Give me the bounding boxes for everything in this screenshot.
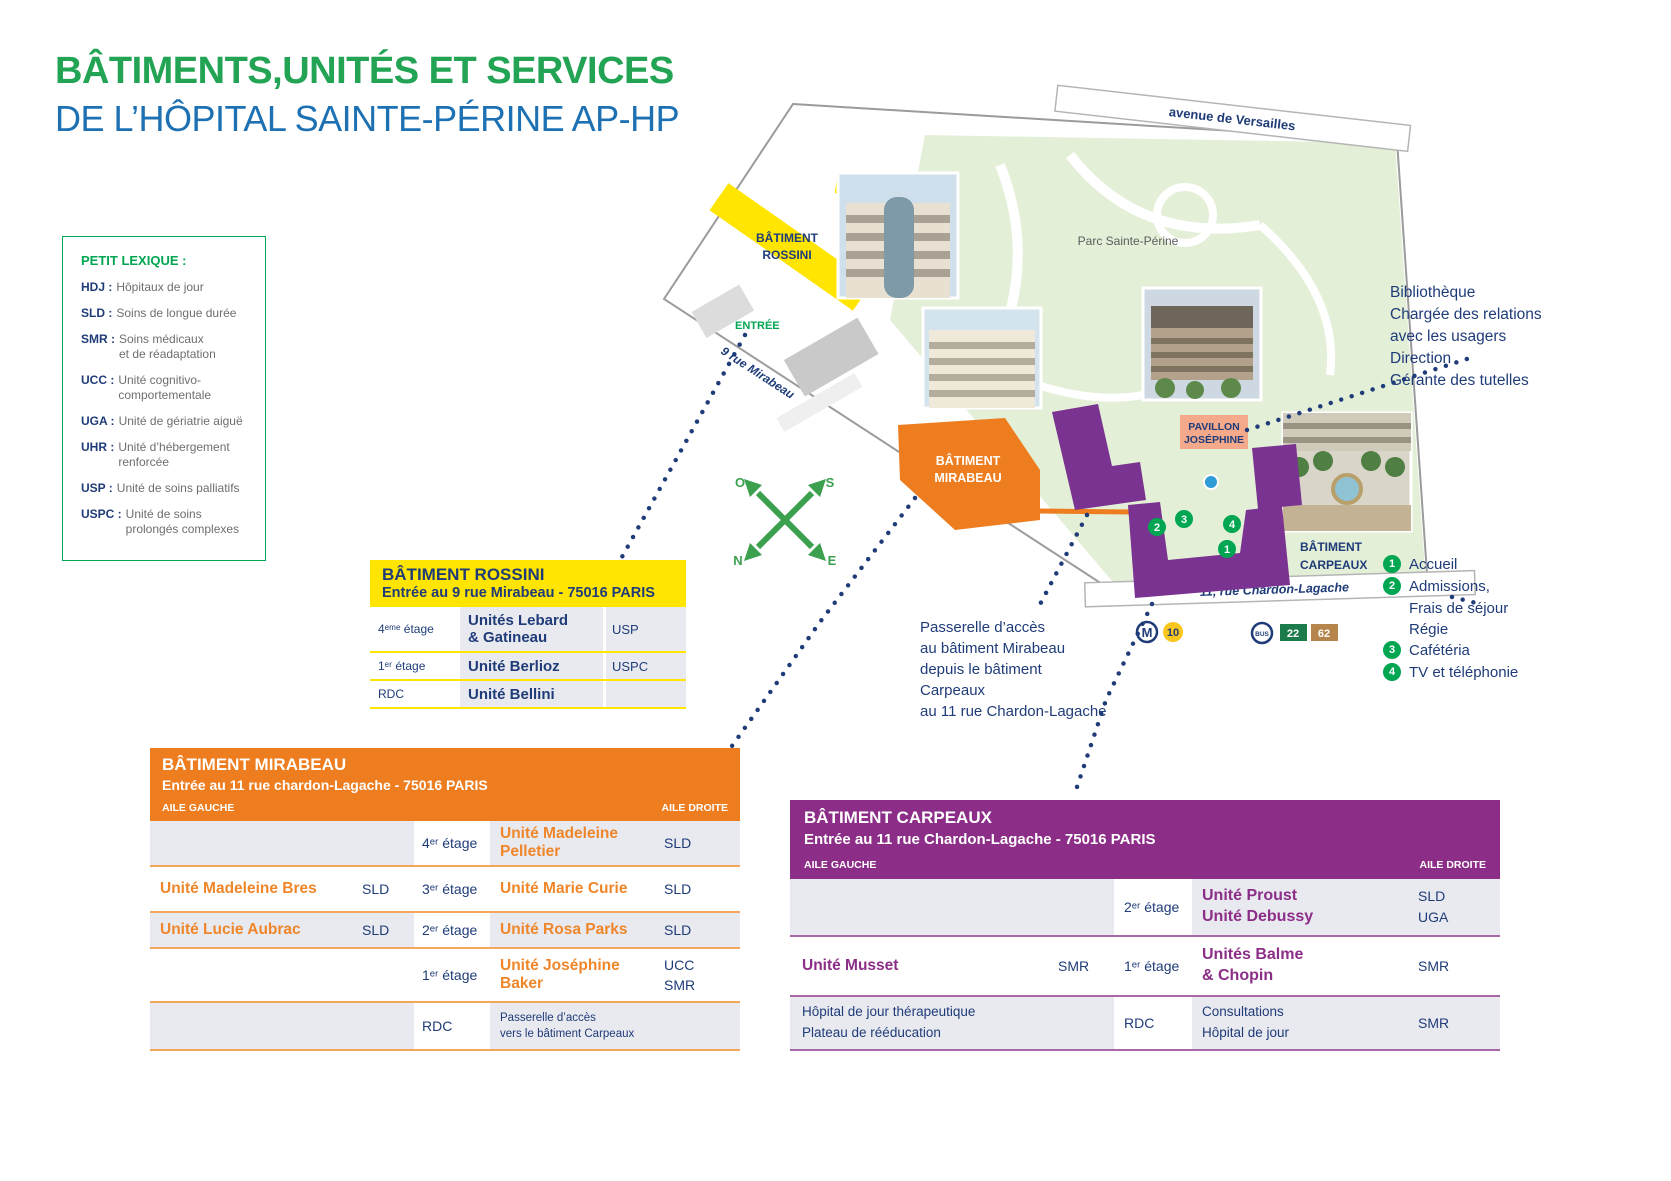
lexicon-abbr: USP : <box>81 481 113 496</box>
josephine-map-label: JOSÉPHINE <box>1184 433 1244 446</box>
mirabeau-map-label: MIRABEAU <box>934 471 1001 485</box>
wing-left-label: AILE GAUCHE <box>804 859 876 871</box>
legend-label: TV et téléphonie <box>1409 662 1518 683</box>
floor-cell: 1ᵉʳ étage <box>370 653 460 679</box>
table-row: 4ᵉᵐᵉ étage Unités Lebard & Gatineau USP <box>370 607 686 653</box>
note-line: Bibliothèque <box>1390 282 1542 304</box>
wing-labels: AILE GAUCHE AILE DROITE <box>804 848 1486 879</box>
mirabeau-map-label: BÂTIMENT <box>936 453 1001 468</box>
right-code-cell: SLD UGA <box>1414 879 1500 935</box>
right-code-cell: SLD <box>660 867 740 911</box>
table-row: RDC Unité Bellini <box>370 681 686 709</box>
entrance-label: ENTRÉE <box>735 319 780 332</box>
table-row: Unité Lucie Aubrac SLD 2ᵉʳ étage Unité R… <box>150 913 740 949</box>
left-code-cell <box>1052 997 1114 1049</box>
rossini-map-label: BÂTIMENT <box>756 230 819 245</box>
legend-number-badge: 3 <box>1383 641 1401 659</box>
note-line: Carpeaux <box>920 680 1107 701</box>
right-code-cell: SLD <box>660 821 740 865</box>
lexicon-def: Unité cognitivo- comportementale <box>118 373 211 403</box>
marker-1: 1 <box>1224 544 1230 556</box>
carpeaux-map-label: CARPEAUX <box>1300 558 1367 572</box>
legend-label: Admissions, <box>1409 576 1490 597</box>
lexicon-entry: USPC :Unité de soins prolongés complexes <box>81 507 253 537</box>
lexicon-def: Unité d’hébergement renforcée <box>118 440 229 470</box>
compass-north: N <box>733 553 742 568</box>
legend-label: Accueil <box>1409 554 1457 575</box>
metro-line-10: 10 <box>1167 627 1179 639</box>
right-unit-cell: Unité Rosa Parks <box>490 913 660 947</box>
floor-cell: 4ᵉʳ étage <box>414 821 490 865</box>
services-note: Bibliothèque Chargée des relations avec … <box>1390 282 1542 392</box>
poster: BÂTIMENTS,UNITÉS ET SERVICES DE L’HÔPITA… <box>0 0 1671 1181</box>
right-code-cell: SMR <box>1414 997 1500 1049</box>
floor-cell: RDC <box>414 1003 490 1049</box>
lexicon-entry: UGA :Unité de gériatrie aiguë <box>81 414 253 429</box>
page-title: BÂTIMENTS,UNITÉS ET SERVICES <box>55 50 674 93</box>
rossini-map-label: ROSSINI <box>762 248 811 262</box>
legend-item: 3 Cafétéria <box>1383 640 1518 661</box>
legend-item: 2 Admissions, <box>1383 576 1518 597</box>
left-code-cell <box>1052 879 1114 935</box>
compass-icon: O S N E <box>733 475 836 568</box>
park-label: Parc Sainte-Périne <box>1078 234 1179 248</box>
lexicon-entry: SMR :Soins médicaux et de réadaptation <box>81 332 253 362</box>
photo-rossini <box>838 173 958 298</box>
table-address: Entrée au 11 rue chardon-Lagache - 75016… <box>162 777 728 793</box>
page-subtitle: DE L’HÔPITAL SAINTE-PÉRINE AP-HP <box>55 98 679 140</box>
right-unit-cell: Unités Balme & Chopin <box>1192 937 1414 995</box>
lexicon-def: Unité de gériatrie aiguë <box>119 414 243 429</box>
transit-icons: M 10 BUS 22 62 <box>1137 622 1338 643</box>
code-cell: USPC <box>606 653 686 679</box>
floor-cell: 2ᵉʳ étage <box>414 913 490 947</box>
compass-east: E <box>828 553 837 568</box>
compass-west: O <box>735 475 745 490</box>
code-cell: USP <box>606 607 686 651</box>
metro-m: M <box>1142 625 1153 640</box>
lexicon-def: Hôpitaux de jour <box>116 280 203 295</box>
note-line: au 11 rue Chardon-Lagache <box>920 701 1107 722</box>
mirabeau-table: BÂTIMENT MIRABEAU Entrée au 11 rue chard… <box>150 748 740 1051</box>
note-line: depuis le bâtiment <box>920 659 1107 680</box>
right-code-cell: UCC SMR <box>660 949 740 1001</box>
table-row: 2ᵉʳ étage Unité Proust Unité Debussy SLD… <box>790 879 1500 937</box>
right-unit-cell: Unité Joséphine Baker <box>490 949 660 1001</box>
unit-cell: Unités Lebard & Gatineau <box>460 607 606 651</box>
table-title: BÂTIMENT CARPEAUX <box>804 808 1486 828</box>
legend-item: 4 TV et téléphonie <box>1383 662 1518 683</box>
unit-cell: Unité Bellini <box>460 681 606 707</box>
left-code-cell <box>356 1003 414 1049</box>
carpeaux-table-header: BÂTIMENT CARPEAUX Entrée au 11 rue Chard… <box>790 800 1500 879</box>
floor-cell: RDC <box>1114 997 1192 1049</box>
left-unit-cell: Unité Lucie Aubrac <box>150 913 356 947</box>
right-unit-cell: Consultations Hôpital de jour <box>1192 997 1414 1049</box>
wing-left-label: AILE GAUCHE <box>162 802 234 814</box>
lexicon-def: Unité de soins palliatifs <box>117 481 240 496</box>
lexicon-def: Unité de soins prolongés complexes <box>126 507 239 537</box>
left-unit-cell <box>150 821 356 865</box>
note-line: avec les usagers <box>1390 326 1542 348</box>
table-address: Entrée au 9 rue Mirabeau - 75016 PARIS <box>382 585 674 601</box>
table-row: 4ᵉʳ étage Unité Madeleine Pelletier SLD <box>150 821 740 867</box>
right-unit-cell: Unité Madeleine Pelletier <box>490 821 660 865</box>
photo-mirabeau <box>923 308 1041 408</box>
lexicon-title: PETIT LEXIQUE : <box>81 253 253 268</box>
marker-3: 3 <box>1181 514 1187 526</box>
legend-label: Régie <box>1409 619 1518 640</box>
right-code-cell: SMR <box>1414 937 1500 995</box>
left-unit-cell <box>790 879 1052 935</box>
lexicon-abbr: USPC : <box>81 507 122 537</box>
marker-2: 2 <box>1154 522 1160 534</box>
floor-cell: 1ᵉʳ étage <box>414 949 490 1001</box>
mirabeau-table-header: BÂTIMENT MIRABEAU Entrée au 11 rue chard… <box>150 748 740 821</box>
passerelle-link <box>1038 511 1132 512</box>
left-unit-cell: Hôpital de jour thérapeutique Plateau de… <box>790 997 1052 1049</box>
note-line: Gérante des tutelles <box>1390 370 1542 392</box>
table-title: BÂTIMENT MIRABEAU <box>162 755 728 775</box>
rossini-table-header: BÂTIMENT ROSSINI Entrée au 9 rue Mirabea… <box>370 560 686 607</box>
lexicon-abbr: HDJ : <box>81 280 112 295</box>
legend-label: Frais de séjour <box>1409 598 1518 619</box>
lexicon-abbr: SLD : <box>81 306 112 321</box>
lexicon-entry: UCC :Unité cognitivo- comportementale <box>81 373 253 403</box>
photo-carpeaux <box>1283 413 1411 531</box>
passerelle-note: Passerelle d’accès au bâtiment Mirabeau … <box>920 617 1107 722</box>
left-unit-cell <box>150 1003 356 1049</box>
note-line: Chargée des relations <box>1390 304 1542 326</box>
legend-number-badge: 4 <box>1383 663 1401 681</box>
table-row: Unité Musset SMR 1ᵉʳ étage Unités Balme … <box>790 937 1500 997</box>
floor-cell: RDC <box>370 681 460 707</box>
lexicon-entry: SLD :Soins de longue durée <box>81 306 253 321</box>
lexicon-abbr: SMR : <box>81 332 115 362</box>
floor-cell: 2ᵉʳ étage <box>1114 879 1192 935</box>
legend-number-badge: 2 <box>1383 577 1401 595</box>
lexicon-entry: USP :Unité de soins palliatifs <box>81 481 253 496</box>
lexicon-def: Soins de longue durée <box>116 306 236 321</box>
right-unit-cell: Unité Proust Unité Debussy <box>1192 879 1414 935</box>
left-code-cell: SMR <box>1052 937 1114 995</box>
rossini-table: BÂTIMENT ROSSINI Entrée au 9 rue Mirabea… <box>370 560 686 709</box>
carpeaux-map-label: BÂTIMENT <box>1300 539 1363 554</box>
photo-josephine <box>1143 288 1261 400</box>
lexicon-entry: UHR :Unité d’hébergement renforcée <box>81 440 253 470</box>
wing-labels: AILE GAUCHE AILE DROITE <box>162 793 728 821</box>
lexicon-box: PETIT LEXIQUE : HDJ :Hôpitaux de jour SL… <box>62 236 266 561</box>
marker-4: 4 <box>1229 519 1236 531</box>
floor-cell: 1ᵉʳ étage <box>1114 937 1192 995</box>
carpeaux-table: BÂTIMENT CARPEAUX Entrée au 11 rue Chard… <box>790 800 1500 1051</box>
lexicon-abbr: UGA : <box>81 414 115 429</box>
lexicon-abbr: UCC : <box>81 373 114 403</box>
unit-cell: Unité Berlioz <box>460 653 606 679</box>
note-line: Passerelle d’accès <box>920 617 1107 638</box>
left-unit-cell: Unité Musset <box>790 937 1052 995</box>
bus-line-62: 62 <box>1318 628 1330 640</box>
left-code-cell <box>356 821 414 865</box>
josephine-map-label: PAVILLON <box>1188 421 1240 433</box>
table-row: Hôpital de jour thérapeutique Plateau de… <box>790 997 1500 1051</box>
right-unit-cell: Unité Marie Curie <box>490 867 660 911</box>
services-legend: 1 Accueil 2 Admissions, Frais de séjour … <box>1383 554 1518 684</box>
table-address: Entrée au 11 rue Chardon-Lagache - 75016… <box>804 831 1486 848</box>
right-code-cell: SLD <box>660 913 740 947</box>
table-title: BÂTIMENT ROSSINI <box>382 565 674 585</box>
legend-number-badge: 1 <box>1383 555 1401 573</box>
left-unit-cell <box>150 949 356 1001</box>
legend-label: Cafétéria <box>1409 640 1470 661</box>
left-unit-cell: Unité Madeleine Bres <box>150 867 356 911</box>
right-unit-cell: Passerelle d’accès vers le bâtiment Carp… <box>490 1003 660 1049</box>
legend-item: 1 Accueil <box>1383 554 1518 575</box>
code-cell <box>606 681 686 707</box>
lexicon-entry: HDJ :Hôpitaux de jour <box>81 280 253 295</box>
table-row: 1ᵉʳ étage Unité Berlioz USPC <box>370 653 686 681</box>
table-row: RDC Passerelle d’accès vers le bâtiment … <box>150 1003 740 1051</box>
floor-cell: 4ᵉᵐᵉ étage <box>370 607 460 651</box>
wing-right-label: AILE DROITE <box>661 802 728 814</box>
bus-line-22: 22 <box>1287 628 1299 640</box>
lexicon-def: Soins médicaux et de réadaptation <box>119 332 216 362</box>
right-code-cell <box>660 1003 740 1049</box>
left-code-cell: SLD <box>356 867 414 911</box>
left-code-cell: SLD <box>356 913 414 947</box>
note-line: Direction <box>1390 348 1542 370</box>
wing-right-label: AILE DROITE <box>1419 859 1486 871</box>
compass-south: S <box>826 475 835 490</box>
note-line: au bâtiment Mirabeau <box>920 638 1107 659</box>
left-code-cell <box>356 949 414 1001</box>
floor-cell: 3ᵉʳ étage <box>414 867 490 911</box>
table-row: 1ᵉʳ étage Unité Joséphine Baker UCC SMR <box>150 949 740 1003</box>
table-row: Unité Madeleine Bres SLD 3ᵉʳ étage Unité… <box>150 867 740 913</box>
location-dot <box>1204 475 1218 489</box>
bus-label: BUS <box>1255 631 1269 638</box>
lexicon-abbr: UHR : <box>81 440 114 470</box>
